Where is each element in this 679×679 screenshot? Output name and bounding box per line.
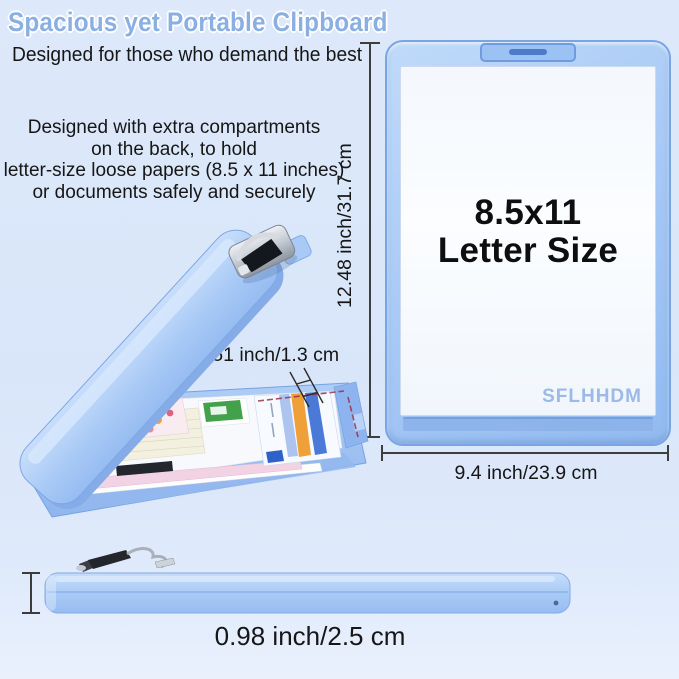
brand-text: SFLHHDM — [542, 386, 642, 408]
closed-clipboard-bar — [45, 573, 570, 613]
width-dimension-tick-left — [381, 445, 383, 461]
hinge-pin-dot — [554, 601, 559, 606]
clipboard-front-view: 8.5x11 Letter Size SFLHHDM — [385, 40, 671, 446]
thickness-dimension-marker — [22, 573, 40, 613]
paper-size-text: 8.5x11 Letter Size — [401, 194, 655, 270]
page-title: Spacious yet Portable Clipboard — [8, 7, 388, 38]
paper-bottom-shadow — [403, 417, 653, 431]
width-dimension-tick-right — [667, 445, 669, 461]
paper-size-line1: 8.5x11 — [401, 194, 655, 232]
height-dimension-tick-top — [360, 42, 380, 44]
flat-clip-icon — [76, 549, 175, 572]
page-subtitle: Designed for those who demand the best — [12, 44, 362, 67]
thickness-dimension-label: 0.98 inch/2.5 cm — [140, 621, 480, 652]
clipboard-product-infographic: Spacious yet Portable Clipboard Designed… — [0, 0, 679, 679]
width-dimension-line — [381, 452, 669, 454]
latch-slot — [509, 49, 547, 55]
latch — [480, 43, 576, 62]
clipboard-open-view — [0, 205, 380, 550]
width-dimension-label: 9.4 inch/23.9 cm — [420, 462, 632, 485]
paper-size-line2: Letter Size — [401, 232, 655, 270]
letter-paper: 8.5x11 Letter Size SFLHHDM — [400, 66, 656, 416]
feature-description: Designed with extra compartments on the … — [0, 117, 348, 204]
